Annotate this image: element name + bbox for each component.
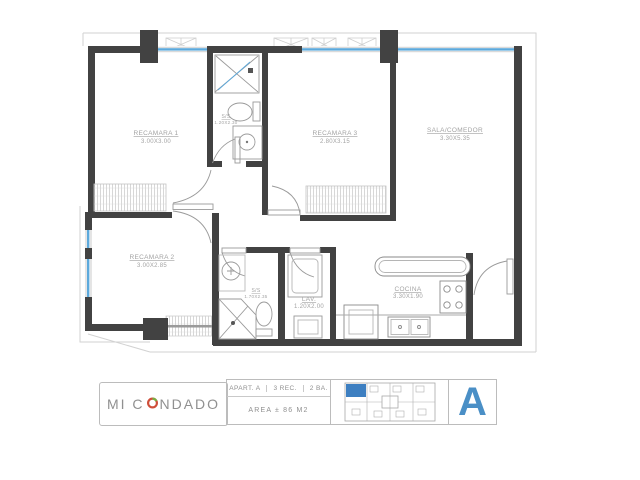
toilet-symbol: [228, 103, 252, 121]
brand-logo-icon: [146, 396, 159, 412]
svg-text:3.30X5.35: 3.30X5.35: [440, 136, 470, 142]
svg-text:RECAMARA 2: RECAMARA 2: [130, 254, 175, 261]
room-label-recamara-2: RECAMARA 2 3.00X2.85: [130, 254, 175, 269]
washer-symbol: [288, 255, 322, 297]
unit-letter: A: [458, 382, 487, 422]
room-label-bath-1: S/S 1.20X2.30: [214, 114, 237, 125]
svg-text:3.30X1.90: 3.30X1.90: [393, 294, 423, 300]
floorplan-sheet: RECAMARA 1 3.00X3.00 RECAMARA 3 2.80X3.1…: [0, 0, 640, 480]
brand-logo: MI CNDADO: [99, 382, 228, 426]
titleblock-table: APART. A 3 REC. 2 BA. AREA ± 86 M2: [226, 379, 497, 425]
keyplan-cell: [331, 380, 449, 424]
entry-door-arc: [474, 261, 507, 295]
toilet-symbol: [256, 302, 272, 326]
room-label-recamara-1: RECAMARA 1 3.00X3.00: [134, 130, 179, 145]
svg-text:1.20X2.30: 1.20X2.30: [214, 120, 237, 125]
stove-symbol: [440, 281, 466, 313]
counter-bar-symbol: [375, 257, 470, 276]
bedrooms-label: 3 REC.: [266, 385, 302, 392]
svg-text:2.80X3.15: 2.80X3.15: [320, 139, 350, 145]
room-label-lavanderia: LAV. 1.20X2.00: [294, 296, 324, 310]
keyplan-highlighted-unit: [346, 384, 366, 397]
entry-door-leaf: [507, 259, 513, 294]
sink-symbol: [219, 255, 245, 291]
room-label-cocina: COCINA 3.30X1.90: [393, 286, 423, 300]
room-label-bath-2: S/S 1.70X2.35: [244, 288, 267, 299]
room-label-recamara-3: RECAMARA 3 2.80X3.15: [313, 130, 358, 145]
room-label-sala-comedor: SALA/COMEDOR 3.30X5.35: [427, 127, 483, 142]
apartment-label: APART. A: [223, 385, 266, 392]
closet-hatch: [94, 184, 386, 213]
svg-text:3.00X2.85: 3.00X2.85: [137, 263, 167, 269]
svg-text:RECAMARA 1: RECAMARA 1: [134, 130, 179, 137]
svg-text:SALA/COMEDOR: SALA/COMEDOR: [427, 127, 483, 134]
svg-text:RECAMARA 3: RECAMARA 3: [313, 130, 358, 137]
svg-text:COCINA: COCINA: [394, 286, 421, 293]
svg-text:1.20X2.00: 1.20X2.00: [294, 304, 324, 310]
svg-text:LAV.: LAV.: [302, 296, 316, 303]
spec-cell: APART. A 3 REC. 2 BA. AREA ± 86 M2: [227, 380, 331, 424]
svg-text:1.70X2.35: 1.70X2.35: [244, 294, 267, 299]
brand-text-prefix: MI C: [107, 396, 145, 412]
area-label: AREA ± 86 M2: [227, 397, 330, 424]
bathrooms-label: 2 BA.: [303, 385, 334, 392]
brand-text-suffix: NDADO: [160, 396, 221, 412]
keyplan-thumbnail: [344, 382, 436, 422]
svg-text:3.00X3.00: 3.00X3.00: [141, 139, 171, 145]
